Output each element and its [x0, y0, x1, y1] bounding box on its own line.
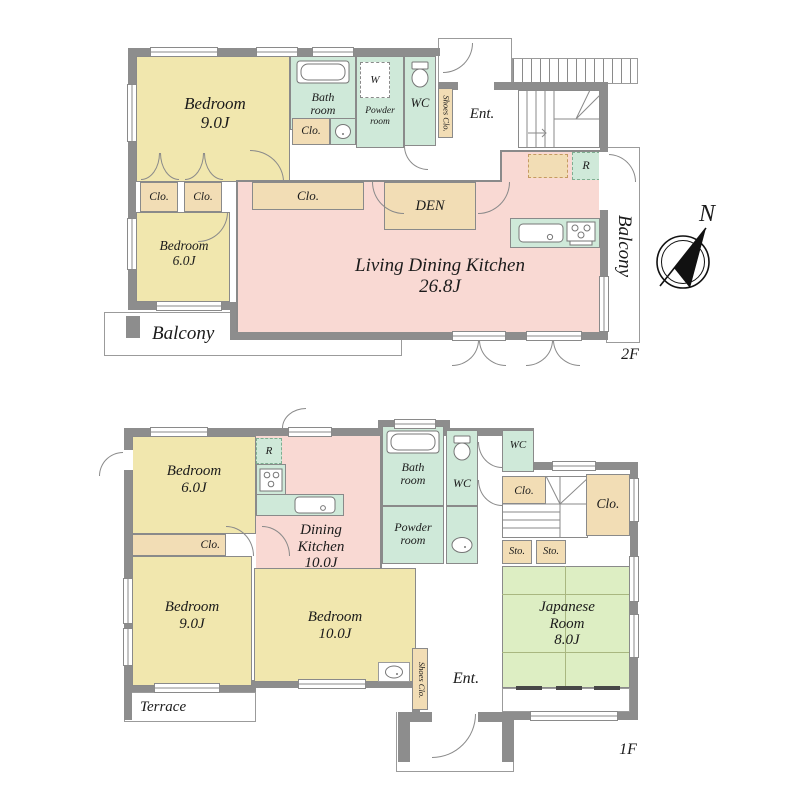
window [298, 679, 366, 689]
label-ent-1f: Ent. [428, 656, 504, 702]
label-bedroom6-2f: Bedroom 6.0J [140, 226, 228, 280]
compass-north-label: N [692, 198, 722, 230]
fridge-slot-2f: R [572, 152, 600, 180]
label-closet: Clo. [140, 182, 178, 212]
label-floor-1f: 1F [606, 740, 650, 760]
window [288, 427, 332, 437]
bathtub-icon [386, 430, 440, 454]
label-floor-2f: 2F [608, 344, 652, 366]
label-closet: Clo. [586, 486, 630, 522]
balcony-side-2f: Balcony [606, 147, 640, 343]
counter-slot [528, 154, 568, 178]
veranda [502, 688, 630, 712]
shoes-closet-2f: Shoes Clo. [438, 88, 453, 138]
sliding-door-mark [556, 686, 582, 690]
label-storage: Sto. [536, 540, 566, 564]
door-opening [599, 152, 609, 210]
label-powder-2f: Powder room [354, 98, 406, 136]
label-closet: Clo. [502, 478, 546, 504]
wall-opening [458, 82, 494, 90]
stove-icon [566, 221, 596, 246]
door-arc [553, 340, 580, 366]
door-arc [452, 340, 479, 366]
door-arc [526, 340, 553, 366]
label-closet: Clo. [252, 182, 364, 210]
entrance-vestibule-2f [438, 38, 512, 86]
window [127, 84, 137, 142]
window [530, 711, 618, 721]
window [123, 628, 133, 666]
washbasin-room-1f [446, 506, 478, 564]
label-bedroom10-1f: Bedroom 10.0J [266, 596, 404, 656]
window [150, 47, 218, 57]
door-arc [99, 452, 123, 476]
shoes-closet-1f: Shoes Clo. [412, 648, 428, 710]
balcony-pillar [126, 316, 140, 338]
wall [124, 428, 132, 720]
porch-pillar [502, 714, 514, 762]
window [312, 47, 354, 57]
label-terrace: Terrace [140, 694, 240, 720]
label-wc2-1f: WC [502, 432, 534, 458]
stairs-2f [518, 90, 600, 148]
shoes-closet-label: Shoes Clo. [440, 89, 453, 139]
sink-icon [518, 223, 564, 243]
partition [500, 150, 502, 182]
window [629, 478, 639, 522]
label-bedroom6-1f: Bedroom 6.0J [140, 452, 248, 508]
toilet-icon [450, 435, 474, 461]
window [629, 556, 639, 602]
window [156, 301, 222, 311]
stove-icon [259, 468, 283, 492]
partition [236, 180, 238, 332]
fridge-slot-1f: R [256, 438, 282, 464]
door-arc [282, 408, 306, 428]
door-arc [404, 146, 428, 170]
window [256, 47, 298, 57]
window [629, 614, 639, 658]
door-opening [122, 450, 133, 470]
washer-slot: W [360, 62, 390, 98]
label-ldk: Living Dining Kitchen 26.8J [290, 248, 590, 304]
label-wc-1f: WC [446, 470, 478, 498]
bathtub-icon [296, 60, 350, 84]
label-closet: Clo. [184, 182, 222, 212]
window [552, 461, 596, 471]
label-den: DEN [384, 182, 476, 230]
door-arc [478, 480, 502, 506]
label-closet: Clo. [292, 118, 330, 145]
balcony-side-label: Balcony [613, 176, 635, 316]
washbasin-icon [334, 123, 352, 140]
label-closet: Clo. [168, 534, 224, 556]
toilet-icon [408, 61, 432, 88]
window [127, 218, 137, 270]
washbasin-icon [450, 536, 474, 554]
porch-pillar [398, 714, 410, 762]
window [123, 578, 133, 624]
floor-plan: Balcony Balcony W Shoes Clo. R [0, 0, 800, 800]
washbasin-icon [384, 665, 404, 679]
sliding-door-mark [594, 686, 620, 690]
door-arc [478, 442, 502, 468]
window [150, 427, 208, 437]
label-bedroom9-1f: Bedroom 9.0J [138, 586, 246, 646]
door-arc [479, 340, 506, 366]
door-arc [443, 43, 473, 73]
label-japanese: Japanese Room 8.0J [512, 582, 622, 666]
label-bedroom9-2f: Bedroom 9.0J [150, 84, 280, 142]
window [154, 683, 220, 693]
label-wc-2f: WC [404, 90, 436, 116]
sink-icon [294, 496, 336, 514]
window [599, 276, 609, 332]
label-ent-2f: Ent. [453, 92, 511, 136]
label-bathroom-1f: Bath room [380, 454, 446, 494]
label-storage: Sto. [502, 540, 532, 564]
exterior-stairs [512, 58, 638, 84]
sliding-door-mark [516, 686, 542, 690]
window [394, 419, 436, 429]
label-powder-1f: Powder room [380, 514, 446, 554]
door-arc [608, 154, 636, 182]
shoes-closet-label: Shoes Clo. [414, 649, 428, 711]
label-dk: Dining Kitchen 10.0J [266, 514, 376, 580]
